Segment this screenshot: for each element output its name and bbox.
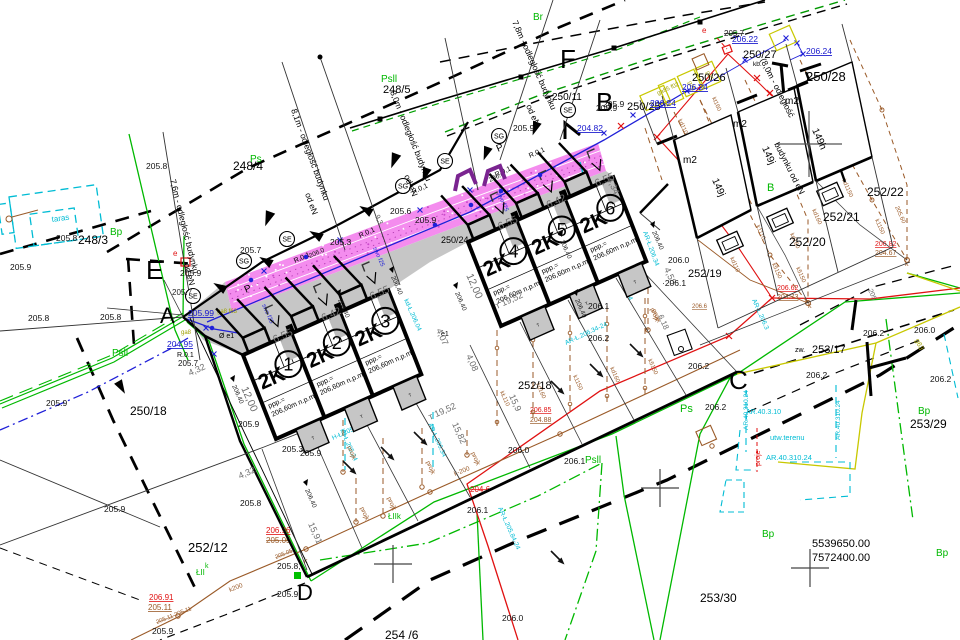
svg-text:206.62: 206.62 xyxy=(777,285,799,292)
svg-text:205.9: 205.9 xyxy=(513,123,535,133)
svg-text:205.8: 205.8 xyxy=(56,233,78,243)
svg-text:206.2: 206.2 xyxy=(863,328,885,338)
svg-text:206.6: 206.6 xyxy=(692,304,708,310)
svg-text:206.91: 206.91 xyxy=(149,593,174,602)
svg-text:206.1: 206.1 xyxy=(588,301,610,311)
svg-text:C: C xyxy=(729,365,748,395)
svg-text:205.9: 205.9 xyxy=(277,589,299,599)
svg-text:·206.1: ·206.1 xyxy=(662,278,686,288)
svg-text:252/18: 252/18 xyxy=(518,380,552,392)
svg-text:B: B xyxy=(767,182,774,194)
svg-text:4: 4 xyxy=(508,242,518,262)
svg-text:Ø e1: Ø e1 xyxy=(219,333,234,340)
svg-text:7572400.00: 7572400.00 xyxy=(812,552,870,564)
svg-text:206.0: 206.0 xyxy=(668,255,690,265)
svg-text:205.9: 205.9 xyxy=(104,504,126,514)
svg-text:206.2: 206.2 xyxy=(705,402,727,412)
svg-text:206.22: 206.22 xyxy=(732,34,758,44)
svg-text:5: 5 xyxy=(557,220,567,240)
svg-text:206.24: 206.24 xyxy=(682,82,708,92)
svg-text:205.9: 205.9 xyxy=(596,103,618,113)
svg-text:proje: proje xyxy=(755,450,762,466)
svg-text:zw.: zw. xyxy=(795,347,805,354)
svg-text:m2: m2 xyxy=(683,155,697,166)
svg-text:205.11: 205.11 xyxy=(148,603,172,612)
svg-text:206.1: 206.1 xyxy=(564,456,586,466)
svg-text:AR.40.310.24: AR.40.310.24 xyxy=(835,400,842,440)
svg-text:252/20: 252/20 xyxy=(789,235,826,249)
svg-text:F: F xyxy=(560,44,576,74)
svg-text:253/17: 253/17 xyxy=(812,344,846,356)
svg-text:205.7: 205.7 xyxy=(172,288,193,297)
svg-text:e: e xyxy=(173,249,178,258)
svg-text:utw.terenu: utw.terenu xyxy=(770,433,805,442)
svg-text:252/21: 252/21 xyxy=(823,210,860,224)
svg-text:206.2: 206.2 xyxy=(806,370,828,380)
svg-text:254 /6: 254 /6 xyxy=(385,628,419,640)
svg-text:Psll: Psll xyxy=(381,74,397,85)
svg-text:R.0.1: R.0.1 xyxy=(177,352,194,359)
svg-text:206.24: 206.24 xyxy=(650,98,676,108)
svg-text:Psll: Psll xyxy=(112,348,128,359)
svg-text:205.3: 205.3 xyxy=(282,444,304,454)
svg-text:206.2: 206.2 xyxy=(930,374,952,384)
svg-text:SE: SE xyxy=(282,237,292,244)
svg-text:253/29: 253/29 xyxy=(910,417,947,431)
svg-text:205.8: 205.8 xyxy=(100,312,122,322)
svg-text:Bp: Bp xyxy=(110,227,123,238)
svg-text:204.95: 204.95 xyxy=(167,339,193,349)
svg-text:204.82: 204.82 xyxy=(577,123,603,133)
svg-text:206.1: 206.1 xyxy=(467,505,489,515)
svg-text:205.6: 205.6 xyxy=(390,206,412,216)
svg-text:206.2: 206.2 xyxy=(688,361,710,371)
svg-text:Bp: Bp xyxy=(936,548,949,559)
svg-text:205.8,: 205.8, xyxy=(277,561,301,571)
svg-text:250/18: 250/18 xyxy=(130,404,167,418)
svg-text:3: 3 xyxy=(380,311,390,331)
svg-text:205.3: 205.3 xyxy=(330,237,352,247)
svg-text:250/24: 250/24 xyxy=(441,235,469,245)
svg-text:6: 6 xyxy=(605,198,615,218)
svg-text:Psll: Psll xyxy=(585,455,601,466)
svg-text:206.0: 206.0 xyxy=(914,325,936,335)
svg-text:Br: Br xyxy=(533,12,544,23)
svg-text:206.96: 206.96 xyxy=(266,526,291,535)
svg-text:205.7: 205.7 xyxy=(240,245,262,255)
svg-text:205.9: 205.9 xyxy=(46,398,68,408)
svg-text:248/3: 248/3 xyxy=(78,233,108,247)
svg-text:AR.40.3.10: AR.40.3.10 xyxy=(746,409,781,416)
svg-text:252/19: 252/19 xyxy=(688,268,722,280)
svg-text:SG: SG xyxy=(494,134,504,141)
svg-text:e: e xyxy=(702,26,707,35)
svg-text:206.24: 206.24 xyxy=(806,46,832,56)
svg-text:Bp: Bp xyxy=(762,529,775,540)
svg-text:AR.40.310.24: AR.40.310.24 xyxy=(766,453,812,462)
svg-text:205.9: 205.9 xyxy=(238,419,260,429)
svg-text:ŁIIk: ŁIIk xyxy=(388,512,402,521)
svg-text:252/12: 252/12 xyxy=(188,540,228,555)
svg-text:m2: m2 xyxy=(733,119,747,130)
svg-text:252/22: 252/22 xyxy=(867,185,904,199)
svg-text:D: D xyxy=(297,580,313,605)
svg-text:206.2: 206.2 xyxy=(588,333,610,343)
svg-text:205.8: 205.8 xyxy=(240,498,262,508)
svg-text:A: A xyxy=(160,303,175,328)
svg-text:253/30: 253/30 xyxy=(700,591,737,605)
svg-text:205.9: 205.9 xyxy=(152,626,174,636)
svg-text:Ps: Ps xyxy=(680,403,693,415)
svg-text:ga8: ga8 xyxy=(181,330,192,336)
svg-text:SE: SE xyxy=(440,159,450,166)
svg-text:205.99: 205.99 xyxy=(188,308,214,318)
svg-text:e1: e1 xyxy=(441,331,449,338)
svg-text:2: 2 xyxy=(332,333,342,353)
svg-text:ŁII: ŁII xyxy=(196,568,205,577)
svg-text:E: E xyxy=(146,255,163,285)
svg-text:204.88: 204.88 xyxy=(530,417,552,424)
svg-text:206.0: 206.0 xyxy=(508,445,530,455)
svg-text:Bp: Bp xyxy=(918,406,931,417)
svg-text:205.9: 205.9 xyxy=(415,215,437,225)
svg-text:1: 1 xyxy=(283,355,293,375)
svg-text:205.8: 205.8 xyxy=(28,313,50,323)
svg-text:5539650.00: 5539650.00 xyxy=(812,538,870,550)
svg-text:Ps: Ps xyxy=(250,154,262,165)
svg-text:250/28: 250/28 xyxy=(806,69,846,84)
svg-text:205.9: 205.9 xyxy=(10,262,32,272)
svg-text:SG: SG xyxy=(239,259,249,266)
svg-text:205.8: 205.8 xyxy=(146,161,168,171)
svg-text:k: k xyxy=(205,563,209,570)
svg-text:206.0: 206.0 xyxy=(502,613,524,623)
svg-text:SE: SE xyxy=(563,108,573,115)
